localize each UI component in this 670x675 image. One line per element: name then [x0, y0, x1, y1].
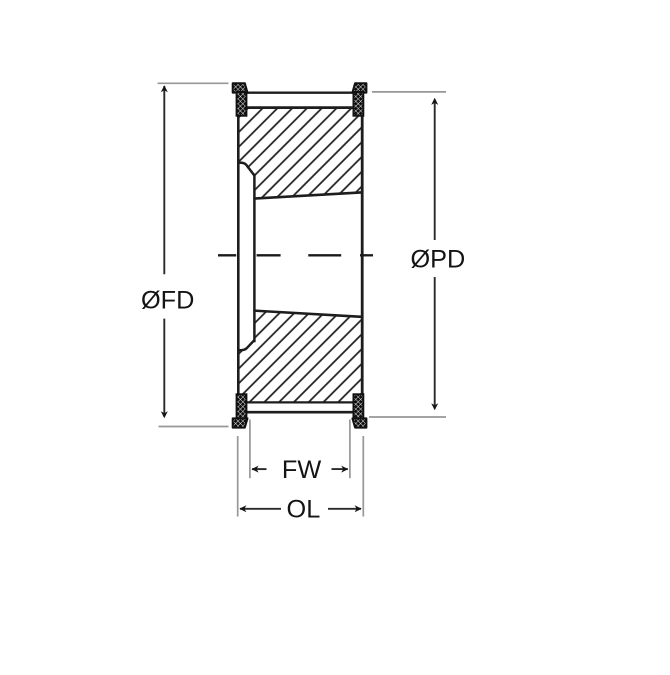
svg-text:ØPD: ØPD: [410, 246, 465, 274]
svg-text:FW: FW: [282, 456, 321, 484]
svg-text:OL: OL: [287, 495, 321, 523]
svg-text:ØFD: ØFD: [141, 286, 194, 314]
